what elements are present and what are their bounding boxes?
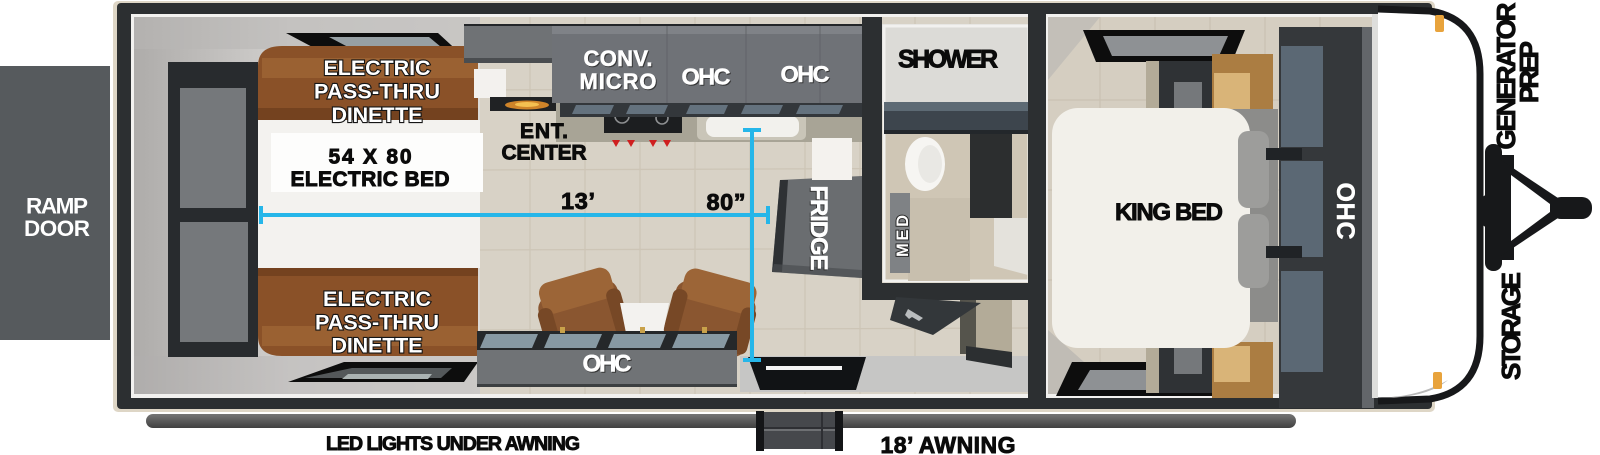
svg-text:CENTER: CENTER (502, 142, 587, 165)
svg-text:OHC: OHC (1331, 183, 1359, 240)
svg-text:18’ AWNING: 18’ AWNING (881, 432, 1016, 455)
svg-text:MED: MED (894, 215, 912, 257)
svg-text:DOOR: DOOR (24, 216, 90, 241)
svg-text:ELECTRIC: ELECTRIC (323, 287, 431, 311)
svg-text:PASS-THRU: PASS-THRU (315, 311, 439, 335)
svg-text:13’: 13’ (561, 188, 595, 214)
svg-text:RAMP: RAMP (26, 194, 88, 219)
svg-text:FRIDGE: FRIDGE (805, 186, 832, 271)
svg-text:LED LIGHTS UNDER AWNING: LED LIGHTS UNDER AWNING (326, 433, 580, 455)
svg-text:PASS-THRU: PASS-THRU (314, 80, 440, 104)
svg-text:STORAGE: STORAGE (1496, 272, 1526, 380)
svg-text:ELECTRIC: ELECTRIC (324, 56, 431, 80)
svg-text:MICRO: MICRO (580, 69, 657, 94)
svg-text:OHC: OHC (682, 64, 731, 90)
svg-text:OHC: OHC (781, 61, 830, 87)
svg-text:CONV.: CONV. (584, 46, 653, 71)
svg-text:KING BED: KING BED (1115, 199, 1223, 226)
svg-text:OHC: OHC (583, 351, 632, 378)
svg-text:ENT.: ENT. (520, 120, 568, 143)
svg-text:DINETTE: DINETTE (332, 103, 423, 127)
svg-text:DINETTE: DINETTE (332, 334, 423, 358)
svg-text:ELECTRIC BED: ELECTRIC BED (291, 168, 450, 191)
svg-text:SHOWER: SHOWER (898, 46, 998, 74)
svg-text:80”: 80” (707, 189, 746, 215)
svg-text:PREP: PREP (1514, 41, 1544, 103)
